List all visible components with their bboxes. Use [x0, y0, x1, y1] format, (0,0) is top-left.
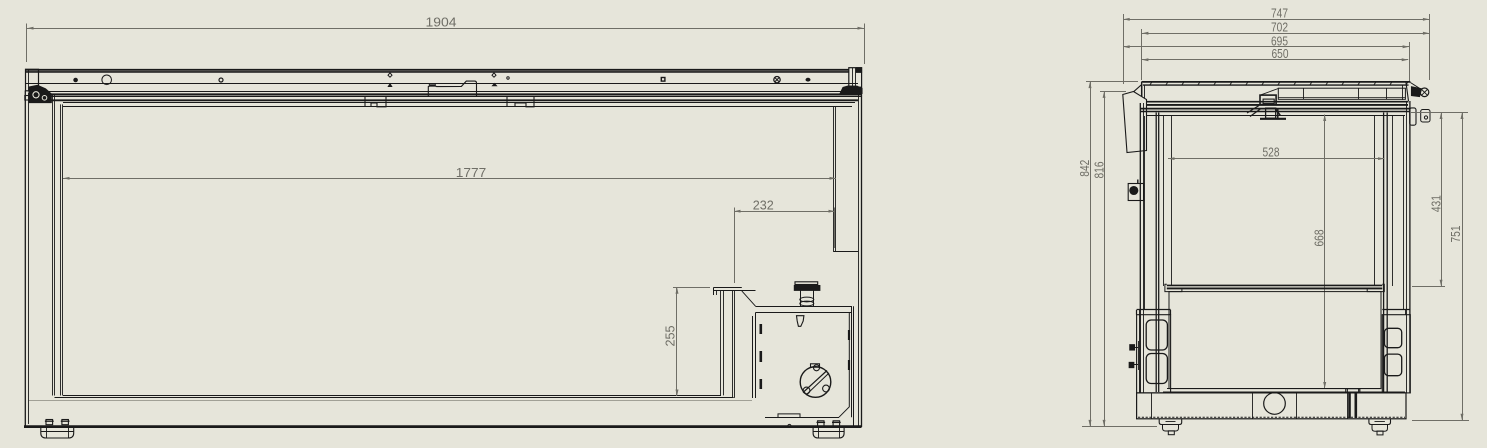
svg-text:842: 842: [1077, 160, 1092, 177]
svg-text:232: 232: [753, 197, 774, 212]
svg-text:751: 751: [1448, 226, 1463, 243]
svg-text:650: 650: [1272, 46, 1289, 61]
svg-text:255: 255: [663, 326, 678, 347]
svg-text:528: 528: [1263, 144, 1280, 159]
svg-text:668: 668: [1312, 230, 1327, 247]
svg-text:702: 702: [1271, 19, 1288, 34]
svg-text:747: 747: [1271, 6, 1288, 21]
svg-text:1777: 1777: [456, 165, 487, 180]
svg-text:1904: 1904: [426, 15, 457, 30]
svg-text:816: 816: [1091, 162, 1106, 179]
svg-text:431: 431: [1428, 195, 1443, 212]
